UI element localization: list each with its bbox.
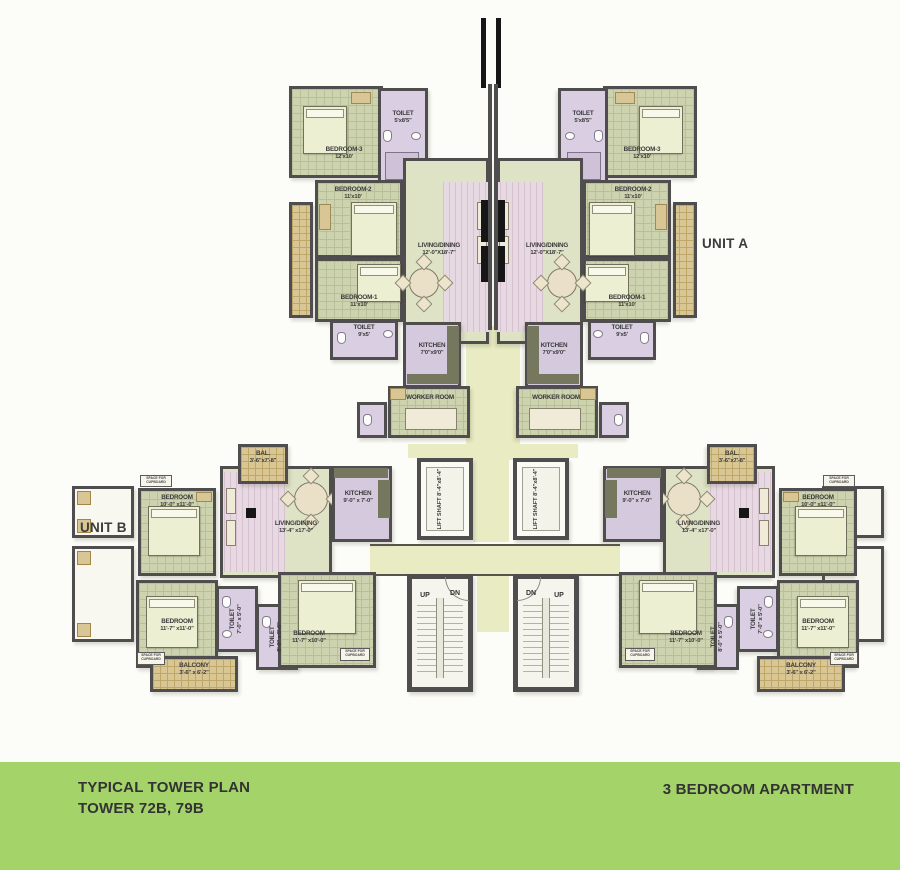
label-toilet-top: TOILET 5'x8'5" <box>559 110 607 128</box>
label-kitchen: KITCHEN 7'0"x9'0" <box>404 342 460 360</box>
stair-up-label: UP <box>415 592 435 602</box>
room-dim: 13'-4" x17'-0" <box>258 528 334 535</box>
wardrobe <box>615 92 635 104</box>
room-dim: 12'x10' <box>309 154 379 161</box>
label-living-dining: LIVING/DINING 13'-4" x17'-0" <box>661 520 737 538</box>
room-name: TOILET <box>332 324 396 332</box>
room-worker-toilet <box>357 402 387 438</box>
sink-fixture <box>411 132 421 140</box>
room-name: BEDROOM-1 <box>585 294 669 302</box>
room-name: BEDROOM <box>779 618 857 626</box>
label-balcony-bottom: BALCONY 3'-6" x 6'-2" <box>154 662 234 680</box>
room-name: BEDROOM-3 <box>607 146 677 154</box>
label-bedroom-top: BEDROOM 10'-0" x11'-0" <box>140 494 214 512</box>
label-bedroom2: BEDROOM-2 11'x10' <box>598 186 668 204</box>
room-name: TOILET <box>590 324 654 332</box>
duct <box>481 200 488 242</box>
room-dim: 3'-6" x 6'-2" <box>761 670 841 677</box>
room-dim: 7'-0" x 5'-0" <box>237 591 244 647</box>
room-name: BEDROOM-1 <box>317 294 401 302</box>
chairs <box>668 483 700 515</box>
apartment-type-label: 3 BEDROOM APARTMENT <box>663 781 854 798</box>
room-dim: 13'-4" x17'-0" <box>661 528 737 535</box>
label-toilet-small: TOILET 9'x5' <box>590 324 654 342</box>
label-lift-left: LIFT SHAFT 8'-4"x8'-4" <box>437 464 453 534</box>
label-balcony-top: BAL. 3'-6"x7'-8" <box>240 450 286 470</box>
unit-a-label: UNIT A <box>702 236 748 251</box>
kitchen-counter <box>407 374 459 384</box>
room-name: WORKER ROOM <box>395 394 465 402</box>
room-dim: 8'-4"x8'-4" <box>437 469 443 496</box>
label-kitchen: KITCHEN 7'0"x9'0" <box>526 342 582 360</box>
label-bedroom-corner: BEDROOM 11'-7" x11'-0" <box>779 618 857 636</box>
sink-fixture <box>565 132 575 140</box>
label-bedroom-top: BEDROOM 10'-0" x11'-0" <box>781 494 855 512</box>
cupboard-note: SPACE FOR CUPBOARD <box>140 475 172 487</box>
bed <box>795 506 847 556</box>
dining-table <box>409 268 439 298</box>
room-name: LIVING/DINING <box>661 520 737 528</box>
bed <box>351 202 397 256</box>
kitchen-counter <box>527 374 579 384</box>
label-bedroom1: BEDROOM-1 11'x10' <box>585 294 669 312</box>
room-name: BEDROOM <box>140 494 214 502</box>
tv-unit <box>246 508 256 518</box>
room-name: TOILET <box>750 591 758 647</box>
label-toilet-top: TOILET 5'x8'5" <box>379 110 427 128</box>
center-wall <box>488 84 492 330</box>
wc-fixture <box>614 414 623 426</box>
room-name: LIFT SHAFT <box>533 497 539 529</box>
room-name: BEDROOM <box>138 618 216 626</box>
label-bedroom-corner: BEDROOM 11'-7" x11'-0" <box>138 618 216 636</box>
label-bedroom3: BEDROOM-3 12'x10' <box>309 146 379 164</box>
room-name: LIVING/DINING <box>399 242 479 250</box>
room-name: BEDROOM <box>781 494 855 502</box>
unit-a-apartment: BEDROOM-3 12'x10' TOILET 5'x8'5" BEDROOM… <box>494 84 701 445</box>
label-bedroom3: BEDROOM-3 12'x10' <box>607 146 677 164</box>
room-name: BAL. <box>709 450 755 458</box>
room-dim: 11'-7" x10'-0" <box>264 638 354 645</box>
bed <box>148 506 200 556</box>
sofa <box>226 520 236 546</box>
kitchen-counter <box>607 468 661 478</box>
cupboard-note: SPACE FOR CUPBOARD <box>625 648 655 661</box>
room-dim: 8'-4"x8'-4" <box>533 469 539 496</box>
label-bedroom-mid: BEDROOM 11'-7" x10'-0" <box>264 630 354 648</box>
corridor-between-stairs <box>477 576 509 632</box>
unit-b-apartment: SPACE FOR CUPBOARD SPACE FOR CUPBOARD SP… <box>136 434 396 706</box>
room-name: TOILET <box>559 110 607 118</box>
room-name: TOILET <box>229 591 237 647</box>
cupboard-note: SPACE FOR CUPBOARD <box>340 648 370 661</box>
room-name: BEDROOM-3 <box>309 146 379 154</box>
unit-a-apartment: BEDROOM-3 12'x10' TOILET 5'x8'5" BEDROOM… <box>285 84 492 445</box>
annex-room <box>72 546 134 642</box>
room-dim: 5'x8'5" <box>379 118 427 125</box>
room-name: TOILET <box>379 110 427 118</box>
room-dim: 11'x10' <box>585 302 669 309</box>
sofa <box>226 488 236 514</box>
label-bedroom-mid: BEDROOM 11'-7" x10'-0" <box>641 630 731 648</box>
room-name: BEDROOM-2 <box>598 186 668 194</box>
chairs <box>295 483 327 515</box>
room-name: LIVING/DINING <box>507 242 587 250</box>
wc-fixture <box>594 130 603 142</box>
label-living-dining: LIVING/DINING 13'-4" x17'-0" <box>258 520 334 538</box>
room-name: BAL. <box>240 450 286 458</box>
label-kitchen: KITCHEN 9'-0" x 7'-0" <box>609 490 665 508</box>
shaft-wall-right <box>496 18 501 88</box>
bed <box>298 580 356 634</box>
room-dim: 11'x10' <box>318 194 388 201</box>
room-dim: 10'-0" x11'-0" <box>781 502 855 509</box>
label-worker-room: WORKER ROOM <box>395 394 465 404</box>
room-dim: 9'-0" x 7'-0" <box>609 498 665 505</box>
corridor-lobby-band <box>370 544 620 576</box>
stair-down-label: DN <box>445 590 465 600</box>
wardrobe <box>655 204 667 230</box>
label-bedroom2: BEDROOM-2 11'x10' <box>318 186 388 204</box>
label-kitchen: KITCHEN 9'-0" x 7'-0" <box>330 490 386 508</box>
duct <box>498 200 505 242</box>
dining-table <box>547 268 577 298</box>
sofa <box>759 520 769 546</box>
chairs <box>548 269 576 297</box>
unit-b-label: UNIT B <box>80 520 127 535</box>
wardrobe <box>351 92 371 104</box>
room-dim: 11'-7" x10'-0" <box>641 638 731 645</box>
room-dim: 11'-7" x11'-0" <box>138 626 216 633</box>
wardrobe <box>319 204 331 230</box>
unit-b-apartment: SPACE FOR CUPBOARD SPACE FOR CUPBOARD SP… <box>599 434 859 706</box>
room-name: KITCHEN <box>330 490 386 498</box>
stair-down-label: DN <box>521 590 541 600</box>
sofa <box>759 488 769 514</box>
room-dim: 3'-6" x 6'-2" <box>154 670 234 677</box>
label-toilet-small: TOILET 9'x5' <box>332 324 396 342</box>
footer-band: TYPICAL TOWER PLAN TOWER 72B, 79B 3 BEDR… <box>0 762 900 870</box>
room-dim: 7'0"x9'0" <box>404 350 460 357</box>
corridor-lift-top <box>408 444 578 458</box>
worker-bed <box>405 408 457 430</box>
tv-unit <box>739 508 749 518</box>
room-dim: 11'x10' <box>598 194 668 201</box>
bed <box>589 202 635 256</box>
stair-rail <box>542 598 550 678</box>
bed <box>639 580 697 634</box>
room-dim: 11'-7" x11'-0" <box>779 626 857 633</box>
room-dim: 3'-6"x7'-8" <box>240 458 286 465</box>
label-bedroom1: BEDROOM-1 11'x10' <box>317 294 401 312</box>
room-name: BEDROOM-2 <box>318 186 388 194</box>
plan-title-line2: TOWER 72B, 79B <box>78 798 250 819</box>
duct <box>498 246 505 282</box>
label-balcony-bottom: BALCONY 3'-6" x 6'-2" <box>761 662 841 680</box>
plan-title-line1: TYPICAL TOWER PLAN <box>78 777 250 798</box>
label-balcony-top: BAL. 3'-6"x7'-8" <box>709 450 755 470</box>
room-name: BEDROOM <box>264 630 354 638</box>
cupboard-note: SPACE FOR CUPBOARD <box>823 475 855 487</box>
room-name: BALCONY <box>761 662 841 670</box>
room-dim: 11'x10' <box>317 302 401 309</box>
room-balcony-strip <box>289 202 313 318</box>
room-dim: 9'-0" x 7'-0" <box>330 498 386 505</box>
room-name: BEDROOM <box>641 630 731 638</box>
room-name: LIVING/DINING <box>258 520 334 528</box>
stair-rail <box>436 598 444 678</box>
room-dim: 9'x5' <box>590 332 654 339</box>
room-dim: 12'x10' <box>607 154 677 161</box>
label-worker-room: WORKER ROOM <box>521 394 591 404</box>
wc-fixture <box>383 130 392 142</box>
kitchen-counter <box>334 468 388 478</box>
floor-plan-page: BEDROOM-3 12'x10' TOILET 5'x8'5" BEDROOM… <box>0 0 900 870</box>
shaft-wall-left <box>481 18 486 88</box>
label-toilet-1: TOILET 7'-0" x 5'-0" <box>229 591 245 647</box>
dining-table <box>667 482 701 516</box>
room-name: BALCONY <box>154 662 234 670</box>
room-name: KITCHEN <box>404 342 460 350</box>
room-dim: 3'-6"x7'-8" <box>709 458 755 465</box>
label-lift-right: LIFT SHAFT 8'-4"x8'-4" <box>533 464 549 534</box>
dining-table <box>294 482 328 516</box>
room-dim: 12'-0"X18'-7" <box>507 250 587 257</box>
label-toilet-1: TOILET 7'-0" x 5'-0" <box>750 591 766 647</box>
room-name: WORKER ROOM <box>521 394 591 402</box>
duct <box>481 246 488 282</box>
room-dim: 7'0"x9'0" <box>526 350 582 357</box>
room-name: KITCHEN <box>609 490 665 498</box>
wc-fixture <box>363 414 372 426</box>
room-name: LIFT SHAFT <box>437 497 443 529</box>
room-dim: 9'x5' <box>332 332 396 339</box>
room-dim: 5'x8'5" <box>559 118 607 125</box>
chairs <box>410 269 438 297</box>
corridor-between-lifts <box>473 458 509 542</box>
worker-bed <box>529 408 581 430</box>
label-living-dining: LIVING/DINING 12'-0"X18'-7" <box>507 242 587 260</box>
room-dim: 7'-0" x 5'-0" <box>758 591 765 647</box>
room-dim: 12'-0"X18'-7" <box>399 250 479 257</box>
plan-title: TYPICAL TOWER PLAN TOWER 72B, 79B <box>78 777 250 819</box>
stair-up-label: UP <box>549 592 569 602</box>
room-balcony-strip <box>673 202 697 318</box>
room-dim: 10'-0" x11'-0" <box>140 502 214 509</box>
room-name: KITCHEN <box>526 342 582 350</box>
label-living-dining: LIVING/DINING 12'-0"X18'-7" <box>399 242 479 260</box>
